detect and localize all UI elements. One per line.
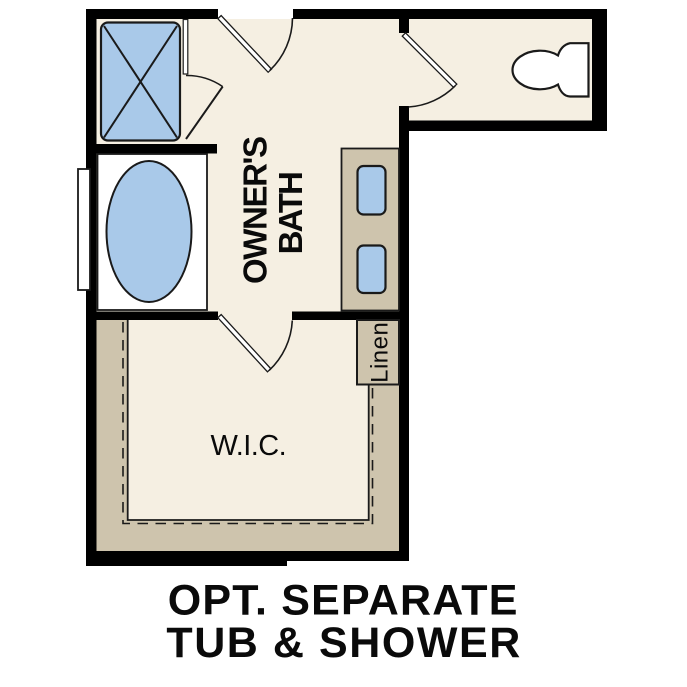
svg-text:Linen: Linen — [367, 322, 394, 383]
svg-text:BATH: BATH — [272, 173, 309, 254]
svg-text:W.I.C.: W.I.C. — [210, 430, 286, 462]
svg-text:TUB & SHOWER: TUB & SHOWER — [166, 619, 521, 667]
svg-text:OWNER'S: OWNER'S — [237, 137, 274, 284]
svg-text:OPT. SEPARATE: OPT. SEPARATE — [168, 577, 519, 625]
